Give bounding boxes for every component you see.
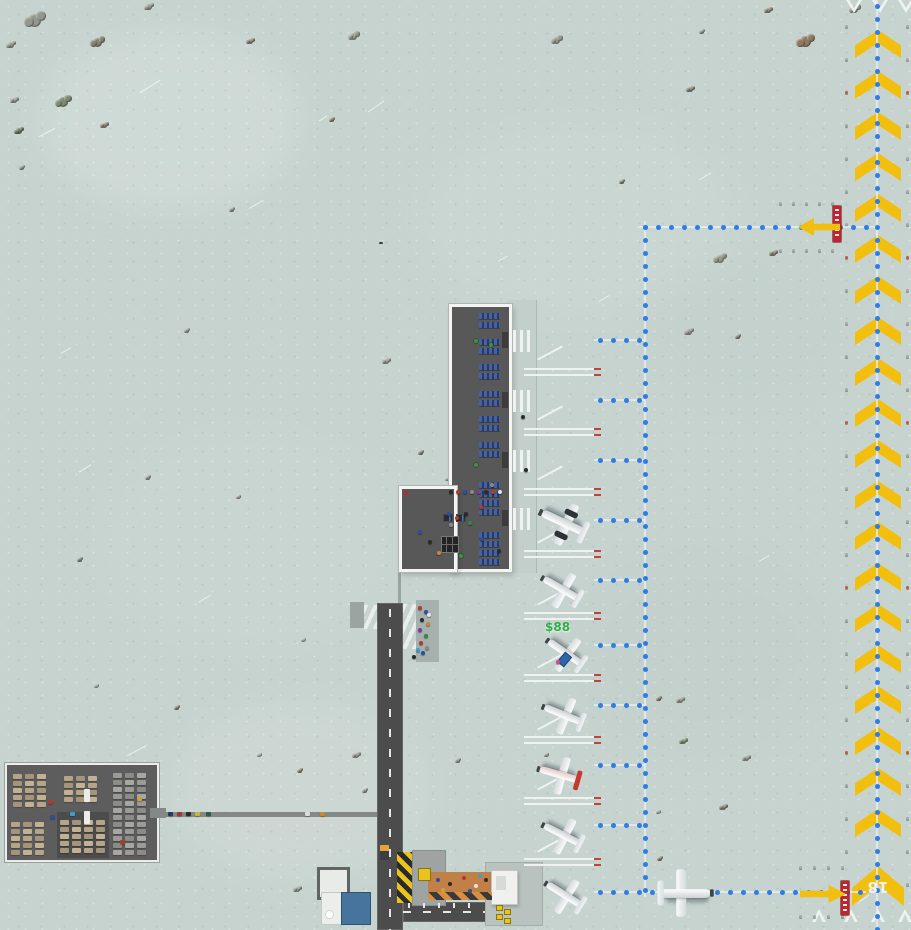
parked-car <box>137 780 146 785</box>
parked-car <box>113 787 122 792</box>
terrain-streak <box>61 347 72 354</box>
stand-boundary-line <box>524 368 601 370</box>
runway-edge-light <box>906 751 909 754</box>
runway-edge-light <box>845 586 848 589</box>
taxiway-light <box>792 202 795 205</box>
taxiway-light <box>841 915 844 918</box>
bush <box>185 329 189 333</box>
bush <box>384 359 389 364</box>
passenger[interactable] <box>470 490 474 494</box>
vehicle <box>120 840 125 844</box>
passenger[interactable] <box>484 490 488 494</box>
bush <box>771 251 776 256</box>
parked-car <box>96 841 105 846</box>
potted-plant <box>474 463 478 467</box>
parked-car <box>137 829 146 834</box>
construction-sign-icon <box>418 868 431 881</box>
runway-edge-light <box>906 553 909 556</box>
crosswalk-left <box>364 605 377 629</box>
bush <box>102 123 107 128</box>
solar-panel[interactable] <box>341 892 371 925</box>
bush <box>12 98 17 103</box>
parked-car <box>13 781 22 786</box>
passenger[interactable] <box>416 648 420 652</box>
bush <box>657 697 661 701</box>
runway-edge-light <box>906 322 909 325</box>
car-on-road <box>177 812 182 816</box>
road-marking-tick <box>438 903 440 908</box>
taxiway-light <box>831 202 834 205</box>
passenger[interactable] <box>418 530 422 534</box>
parked-car <box>35 829 44 834</box>
bush <box>419 451 423 455</box>
taxiway-light <box>779 202 782 205</box>
passenger[interactable] <box>477 490 481 494</box>
parked-car <box>23 843 32 848</box>
potted-plant <box>489 343 493 347</box>
passenger[interactable] <box>497 549 501 553</box>
bench-seating[interactable] <box>479 491 500 497</box>
parked-car <box>125 829 134 834</box>
bush <box>28 14 41 27</box>
runway-edge-light <box>906 586 909 589</box>
bench-seating[interactable] <box>479 391 500 397</box>
parked-car <box>88 783 97 788</box>
parked-car <box>37 781 46 786</box>
stand-boundary-line <box>524 680 601 682</box>
bench-seating[interactable] <box>479 348 500 354</box>
runway-number-marking: 18 <box>858 874 898 896</box>
parked-car <box>35 850 44 855</box>
parked-car <box>11 829 20 834</box>
bush <box>700 30 704 34</box>
terrain-streak <box>249 200 263 209</box>
parked-car <box>113 850 122 855</box>
gate-crossing-marking <box>513 508 533 530</box>
parked-car <box>60 834 69 839</box>
parked-car <box>25 774 34 779</box>
passenger[interactable] <box>498 490 502 494</box>
runway-edge-light <box>845 619 848 622</box>
parked-car <box>13 795 22 800</box>
taxiway-light <box>818 249 821 252</box>
passenger[interactable] <box>425 646 429 650</box>
runway-edge-light <box>906 454 909 457</box>
terminal-gate-door[interactable] <box>502 392 508 408</box>
parked-car <box>37 795 46 800</box>
passenger[interactable] <box>521 415 525 419</box>
parked-car <box>113 808 122 813</box>
vehicle <box>137 797 142 801</box>
parked-car <box>64 797 73 802</box>
parked-car <box>35 843 44 848</box>
parked-car <box>37 788 46 793</box>
runway-edge-light <box>906 91 909 94</box>
bird <box>379 242 383 244</box>
runway-edge-light <box>845 25 848 28</box>
security-scanner-table[interactable] <box>441 536 459 553</box>
parked-car <box>137 850 146 855</box>
parked-car <box>72 834 81 839</box>
parked-car <box>125 787 134 792</box>
bush <box>295 887 300 892</box>
bench-seating[interactable] <box>479 442 500 448</box>
parked-car <box>84 827 93 832</box>
gate-crossing-marking <box>513 390 533 412</box>
stand-boundary-line <box>524 803 601 805</box>
stand-taxi-dots <box>594 819 645 832</box>
parked-car <box>84 841 93 846</box>
runway-edge-light <box>845 652 848 655</box>
taxiway-light <box>792 249 795 252</box>
taxiway-light <box>841 866 844 869</box>
parked-car <box>13 774 22 779</box>
passenger[interactable] <box>428 540 432 544</box>
parked-car <box>113 773 122 778</box>
parked-car <box>25 802 34 807</box>
runway-edge-light <box>845 124 848 127</box>
runway-edge-light <box>906 652 909 655</box>
bush <box>363 789 367 793</box>
runway-edge-light <box>906 784 909 787</box>
parked-car <box>25 795 34 800</box>
parked-car <box>72 827 81 832</box>
bush <box>20 166 24 170</box>
parked-car <box>37 802 46 807</box>
runway-edge-light <box>845 58 848 61</box>
bench-seating[interactable] <box>479 313 500 319</box>
passenger[interactable] <box>468 521 472 525</box>
bush <box>248 39 253 44</box>
runway-edge-light <box>845 718 848 721</box>
fuel-depot-building[interactable] <box>491 870 518 905</box>
runway-edge-light <box>906 817 909 820</box>
terrain-streak <box>318 115 327 121</box>
parked-car <box>96 834 105 839</box>
stand-lead-in-line <box>537 346 563 361</box>
parked-car <box>84 834 93 839</box>
passenger[interactable] <box>491 490 495 494</box>
taxiway-guide-dots <box>639 221 652 897</box>
runway-edge-light <box>906 190 909 193</box>
runway-edge-light <box>906 685 909 688</box>
terminal-gate-door[interactable] <box>502 452 508 468</box>
parked-car <box>72 841 81 846</box>
parked-car <box>60 848 69 853</box>
terrain-patch <box>40 30 300 210</box>
bush <box>8 42 14 48</box>
road-marking-tick <box>468 903 470 908</box>
construction-truck[interactable] <box>380 845 389 860</box>
bush <box>146 4 152 10</box>
fuel-pump[interactable] <box>505 910 510 914</box>
stand-boundary-line <box>524 488 601 490</box>
runway-edge-light <box>906 850 909 853</box>
stand-taxi-dots <box>594 394 645 407</box>
passenger[interactable] <box>412 655 416 659</box>
bench-seating[interactable] <box>479 451 500 457</box>
money-popup: $88 <box>545 620 570 634</box>
stand-boundary-line <box>524 556 601 558</box>
aircraft[interactable] <box>656 864 714 922</box>
runway-edge-light <box>845 487 848 490</box>
parked-car <box>11 836 20 841</box>
parked-car <box>125 801 134 806</box>
runway-edge-light <box>845 685 848 688</box>
car-on-road <box>206 812 211 816</box>
taxiway-guide-dots <box>639 221 877 234</box>
taxiway-light <box>805 202 808 205</box>
passenger[interactable] <box>424 634 428 638</box>
terrain-streak <box>368 100 385 112</box>
aircraft[interactable] <box>528 488 598 558</box>
parked-car <box>113 815 122 820</box>
stand-boundary-line <box>524 742 601 744</box>
parked-car <box>88 776 97 781</box>
passenger[interactable] <box>447 512 451 516</box>
runway-edge-light <box>906 883 909 886</box>
parked-car <box>64 776 73 781</box>
construction-dirt-zone[interactable] <box>428 872 492 894</box>
taxiway-light <box>799 915 802 918</box>
parked-car <box>125 822 134 827</box>
stand-boundary-line <box>524 864 601 866</box>
parked-car <box>125 773 134 778</box>
passenger[interactable] <box>455 516 459 520</box>
car-on-road <box>195 812 200 816</box>
aircraft[interactable] <box>531 804 593 866</box>
runway-edge-light <box>845 454 848 457</box>
taxiway-light <box>779 249 782 252</box>
runway-edge-light <box>906 355 909 358</box>
gate-crossing-marking <box>513 450 533 472</box>
parked-car <box>125 808 134 813</box>
passenger[interactable] <box>449 523 453 527</box>
runway-edge-light <box>845 850 848 853</box>
road-marking-tick <box>423 903 425 908</box>
bush <box>657 811 660 814</box>
parked-car <box>72 848 81 853</box>
vehicle <box>50 815 55 819</box>
runway-edge-light <box>845 322 848 325</box>
parked-van <box>84 789 90 802</box>
passenger[interactable] <box>420 618 424 622</box>
bench-seating[interactable] <box>479 509 500 515</box>
taxiway-light <box>831 249 834 252</box>
bush <box>302 639 305 642</box>
parked-car <box>113 801 122 806</box>
passenger[interactable] <box>556 660 560 664</box>
stand-boundary-line <box>524 434 601 436</box>
passenger[interactable] <box>490 483 494 487</box>
parked-car <box>137 815 146 820</box>
parked-car <box>76 776 85 781</box>
parked-car <box>64 790 73 795</box>
airport-game-map: $88 18 <box>0 0 911 930</box>
bench-seating[interactable] <box>479 425 500 431</box>
parked-car <box>25 781 34 786</box>
terrain-streak <box>127 745 147 756</box>
stand-lead-in-line <box>537 466 563 481</box>
stand-lead-in-line <box>537 406 563 421</box>
bush <box>800 36 811 47</box>
runway-edge-light <box>906 520 909 523</box>
fire-extinguisher <box>405 491 408 495</box>
passenger[interactable] <box>449 490 453 494</box>
bush <box>58 97 68 107</box>
bush <box>744 756 749 761</box>
taxiway-guide-dots <box>871 0 884 930</box>
bush <box>678 698 683 703</box>
bench-seating[interactable] <box>479 322 500 328</box>
parking-access-road <box>160 812 378 817</box>
parked-car <box>137 822 146 827</box>
parked-car <box>23 850 32 855</box>
aircraft[interactable] <box>531 747 588 804</box>
runway-edge-light <box>906 421 909 424</box>
construction-hazard-strip <box>397 852 412 903</box>
runway-edge-light <box>906 124 909 127</box>
bush <box>16 128 22 134</box>
runway-edge-light <box>906 388 909 391</box>
runway-edge-light <box>845 553 848 556</box>
stand-taxi-dots <box>594 574 645 587</box>
bush <box>354 753 359 758</box>
passenger[interactable] <box>456 490 460 494</box>
runway-edge-light <box>845 421 848 424</box>
parked-car <box>23 836 32 841</box>
parked-car <box>137 836 146 841</box>
construction-item <box>436 878 440 882</box>
terminal-gate-door[interactable] <box>502 332 508 348</box>
bench-seating[interactable] <box>479 559 500 565</box>
parked-car <box>35 836 44 841</box>
parked-car <box>137 801 146 806</box>
bush <box>736 335 740 339</box>
runway-edge-light <box>906 25 909 28</box>
bush <box>230 208 234 212</box>
road-marking-tick <box>408 903 410 908</box>
taxiway-light <box>799 866 802 869</box>
stand-taxi-dots <box>594 639 645 652</box>
runway-edge-light <box>906 256 909 259</box>
bush <box>688 87 693 92</box>
car-on-road <box>305 812 310 816</box>
passenger[interactable] <box>418 606 422 610</box>
parked-car <box>96 820 105 825</box>
bush <box>721 805 726 810</box>
car-on-road <box>168 812 173 816</box>
fuel-pump[interactable] <box>497 906 502 910</box>
fuel-pump[interactable] <box>505 919 510 923</box>
parked-car <box>125 843 134 848</box>
parked-car <box>125 815 134 820</box>
passenger[interactable] <box>524 468 528 472</box>
potted-plant <box>474 339 478 343</box>
runway-edge-light <box>845 289 848 292</box>
parked-car <box>23 822 32 827</box>
bush <box>766 8 771 13</box>
parked-car <box>137 843 146 848</box>
parked-car <box>60 820 69 825</box>
terminal-gate-door[interactable] <box>502 510 508 526</box>
fuel-pump[interactable] <box>497 915 502 919</box>
parked-car <box>125 794 134 799</box>
potted-plant <box>459 554 463 558</box>
parked-car <box>11 822 20 827</box>
passenger[interactable] <box>463 490 467 494</box>
parked-car <box>125 850 134 855</box>
bench-seating[interactable] <box>479 416 500 422</box>
passenger[interactable] <box>464 512 468 516</box>
terrain-streak <box>79 464 91 472</box>
parked-car <box>113 780 122 785</box>
stand-taxi-dots <box>594 334 645 347</box>
passenger[interactable] <box>421 651 425 655</box>
taxiway-light <box>827 866 830 869</box>
parked-car <box>23 829 32 834</box>
runway-edge-light <box>845 520 848 523</box>
parked-car <box>125 780 134 785</box>
bench-seating[interactable] <box>479 541 500 547</box>
bench-seating[interactable] <box>479 373 500 379</box>
sidewalk-left <box>350 602 364 628</box>
passenger[interactable] <box>427 613 431 617</box>
bush <box>93 38 102 47</box>
stand-taxi-dots <box>594 699 645 712</box>
parked-car <box>25 788 34 793</box>
bench-seating[interactable] <box>479 364 500 370</box>
car-on-road <box>320 812 325 816</box>
road-marking-tick <box>453 903 455 908</box>
passenger[interactable] <box>480 537 484 541</box>
bench-seating[interactable] <box>479 400 500 406</box>
parked-car <box>37 774 46 779</box>
runway-edge-light <box>906 718 909 721</box>
passenger[interactable] <box>426 622 430 626</box>
stand-taxi-dots <box>594 514 645 527</box>
runway-edge-light <box>906 58 909 61</box>
stand-taxi-dots <box>594 759 645 772</box>
runway-hold-sign <box>841 881 849 915</box>
terminal-extension[interactable] <box>399 486 457 572</box>
stand-taxi-dots <box>594 454 645 467</box>
passenger[interactable] <box>437 551 441 555</box>
bush <box>298 769 302 773</box>
runway-edge-light <box>906 289 909 292</box>
construction-item <box>448 882 452 886</box>
construction-dirt-hazard-edge <box>428 892 492 900</box>
bush <box>330 118 334 122</box>
terrain-patch <box>640 250 860 410</box>
passenger[interactable] <box>419 641 423 645</box>
bush <box>78 558 82 562</box>
bush <box>716 255 724 263</box>
parked-car <box>60 827 69 832</box>
runway-edge-light <box>845 190 848 193</box>
passenger[interactable] <box>418 628 422 632</box>
taxiway-light <box>827 915 830 918</box>
bush <box>553 37 560 44</box>
construction-item <box>468 889 472 893</box>
bush <box>237 496 240 499</box>
parked-car <box>35 822 44 827</box>
parked-car <box>96 848 105 853</box>
passenger[interactable] <box>479 505 483 509</box>
parked-car <box>125 836 134 841</box>
stand-boundary-line <box>524 428 601 430</box>
bush <box>350 33 357 40</box>
